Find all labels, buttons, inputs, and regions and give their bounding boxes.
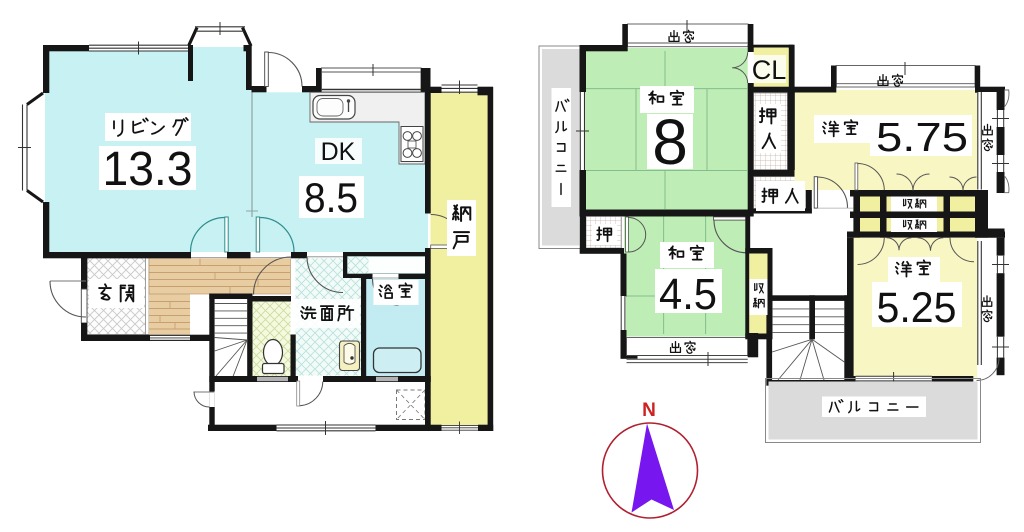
svg-text:8.5: 8.5: [304, 174, 358, 221]
svg-text:4.5: 4.5: [659, 270, 717, 319]
svg-text:5.25: 5.25: [877, 284, 957, 332]
svg-text:5.75: 5.75: [876, 114, 968, 160]
svg-text:13.3: 13.3: [103, 143, 193, 196]
svg-text:DK: DK: [321, 138, 356, 166]
svg-text:8: 8: [652, 106, 688, 178]
svg-text:CL: CL: [752, 55, 787, 85]
svg-text:N: N: [642, 400, 656, 421]
